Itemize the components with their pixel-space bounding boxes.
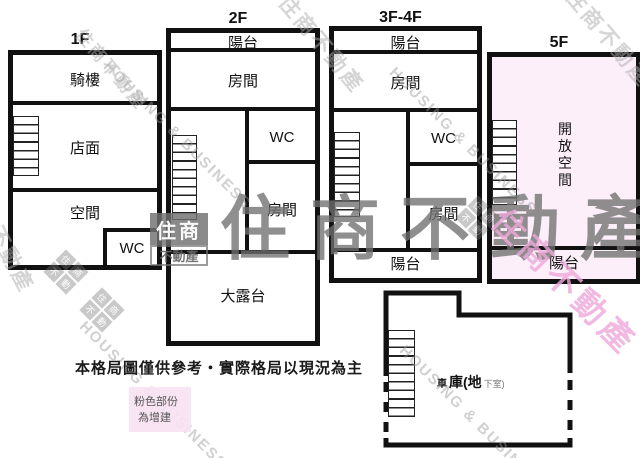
seal-char: 動: [91, 311, 112, 332]
room-label-room-front-3f4f: 房間: [334, 72, 477, 93]
room-label-balcony-5f: 陽台: [492, 252, 636, 273]
pink-annotation-line1: 粉色部份: [134, 393, 178, 409]
floor-title-2f: 2F: [166, 10, 310, 28]
pink-annotation: 粉色部份 為增建: [129, 387, 191, 432]
seal-char: 不: [79, 299, 100, 320]
wall-divider: [406, 162, 477, 166]
floor-plan-5f: 開放空間 陽台: [487, 52, 640, 284]
room-label-open-space: 開放空間: [554, 121, 576, 189]
seal-char: 商: [103, 299, 124, 320]
room-label-balcony-front-3f4f: 陽台: [334, 32, 477, 53]
room-label-room-rear-3f4f: 房間: [410, 203, 477, 224]
seal-char: 住: [91, 287, 112, 308]
room-label-wc-3f4f: WC: [410, 130, 477, 147]
pink-annotation-line2: 為增建: [138, 409, 171, 425]
stairs-3f4f: [334, 132, 360, 217]
wall-divider: [171, 107, 315, 111]
stairs-5f: [492, 120, 517, 205]
floor-plan-2f: 陽台 房間 WC 房間 大露台: [166, 28, 320, 346]
room-label-space: 空間: [13, 202, 157, 223]
room-label-balcony-2f: 陽台: [171, 32, 315, 53]
floor-title-3f4f: 3F-4F: [329, 9, 472, 27]
basement-label-main: 庫(地: [449, 372, 482, 392]
floor-title-5f: 5F: [487, 34, 631, 52]
floor-plan-sheet: 1F 騎樓 店面 空間 WC 2F 陽台 房間 WC 房間 大露台 3F-4F …: [0, 0, 640, 458]
room-label-balcony-rear-3f4f: 陽台: [334, 253, 477, 274]
wall-divider: [13, 101, 157, 105]
disclaimer-text: 本格局圖僅供參考・實際格局以現況為主: [75, 357, 363, 378]
floor-plan-1f: 騎樓 店面 空間 WC: [8, 50, 162, 270]
floor-title-1f: 1F: [8, 31, 152, 49]
wall-divider: [171, 250, 315, 254]
wall-divider: [13, 188, 157, 192]
room-wc-1f: WC: [103, 228, 157, 265]
room-label-storefront: 店面: [13, 137, 157, 158]
room-label-arcade: 騎樓: [13, 69, 157, 90]
room-label-terrace-2f: 大露台: [171, 285, 315, 306]
basement-label-prefix: 車: [437, 375, 447, 390]
seal-char: 動: [55, 273, 76, 294]
basement-label: 車 庫(地 下室): [437, 372, 505, 392]
wall-divider: [492, 246, 636, 250]
wall-divider: [245, 160, 315, 164]
room-label-wc-1f: WC: [120, 240, 145, 257]
stairs-basement: [388, 330, 415, 417]
basement-label-suffix: 下室): [484, 377, 505, 390]
room-label-wc-2f: WC: [249, 129, 315, 146]
stairs-2f: [172, 135, 197, 220]
room-label-room-rear-2f: 房間: [249, 199, 315, 220]
floor-plan-3f4f: 陽台 房間 WC 房間 陽台: [329, 26, 482, 283]
watermark-seal-1: 住 商 不 動: [79, 287, 124, 332]
room-label-room-front-2f: 房間: [171, 70, 315, 91]
